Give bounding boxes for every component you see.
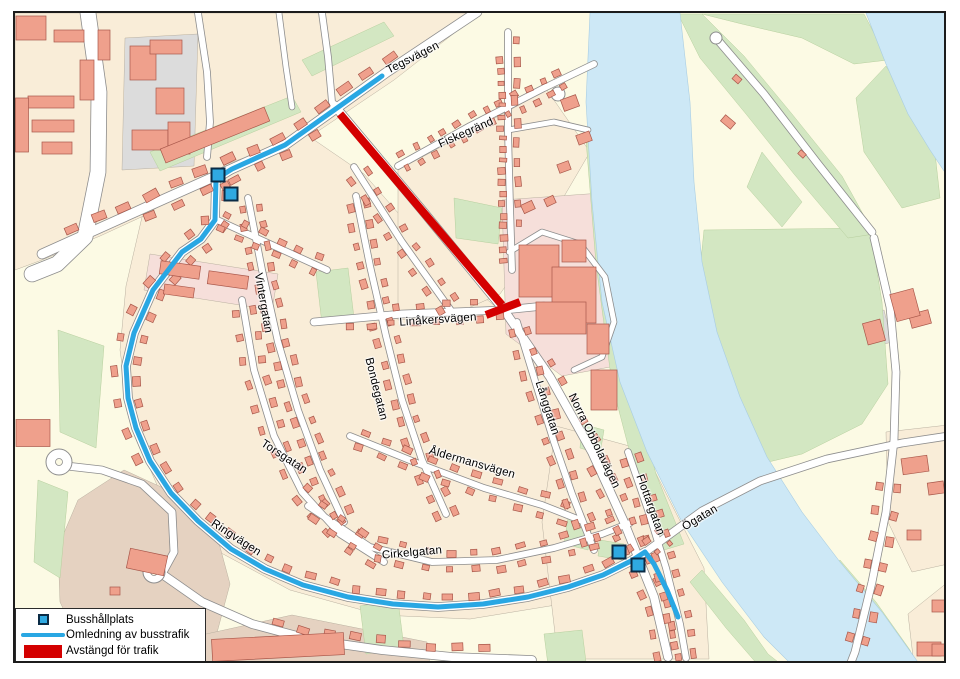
detour-route-legend-icon (21, 633, 65, 637)
bus-stop-legend-icon (38, 614, 49, 625)
legend-item-closed: Avstängd för trafik (20, 644, 201, 659)
bus-stop-marker (212, 169, 225, 182)
bus-stop-marker (225, 188, 238, 201)
legend-label-bus-stop: Busshållplats (66, 614, 134, 626)
map-canvas: TegsvägenFiskegrändVintergatanLinåkersvä… (13, 11, 946, 663)
legend-item-bus-stop: Busshållplats (20, 612, 201, 627)
map-legend: Busshållplats Omledning av busstrafik Av… (15, 608, 206, 663)
bus-stop-marker (613, 546, 626, 559)
bus-stop-marker (632, 559, 645, 572)
legend-label-closed: Avstängd för trafik (66, 645, 158, 657)
legend-label-detour: Omledning av busstrafik (66, 629, 189, 641)
legend-item-detour: Omledning av busstrafik (20, 628, 201, 643)
base-map (15, 13, 946, 663)
closed-road-legend-icon (24, 645, 62, 658)
map-page: TegsvägenFiskegrändVintergatanLinåkersvä… (0, 0, 960, 679)
